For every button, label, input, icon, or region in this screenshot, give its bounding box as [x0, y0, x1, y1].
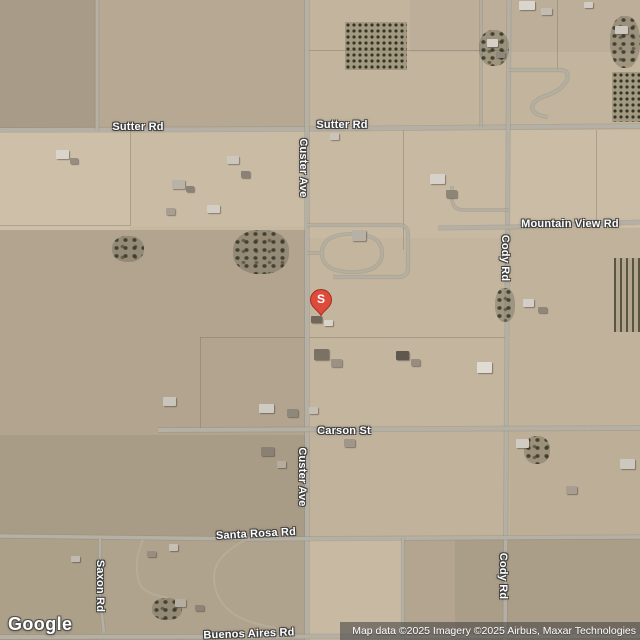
attribution-bar: Map data ©2025 Imagery ©2025 Airbus, Max…: [340, 622, 640, 640]
road-labels-layer: Sutter RdSutter RdCuster AveCuster AveMo…: [0, 0, 640, 640]
google-logo[interactable]: Google: [8, 614, 72, 635]
road-label: Sutter Rd: [316, 119, 367, 131]
road-label: Custer Ave: [297, 138, 309, 197]
road-label: Sutter Rd: [112, 121, 163, 133]
marker-label: S: [310, 293, 332, 306]
road-label: Cody Rd: [499, 235, 511, 282]
road-label: Mountain View Rd: [521, 218, 619, 230]
road-label: Custer Ave: [296, 447, 308, 506]
road-label: Carson St: [317, 425, 371, 437]
satellite-map[interactable]: Sutter RdSutter RdCuster AveCuster AveMo…: [0, 0, 640, 640]
road-label: Santa Rosa Rd: [216, 526, 297, 542]
location-marker[interactable]: S: [310, 289, 332, 316]
road-label: Cody Rd: [497, 553, 509, 600]
road-label: Buenos Aires Rd: [203, 626, 295, 640]
map-attribution: Map data ©2025 Imagery ©2025 Airbus, Max…: [352, 625, 636, 637]
road-label: Saxon Rd: [94, 560, 106, 612]
